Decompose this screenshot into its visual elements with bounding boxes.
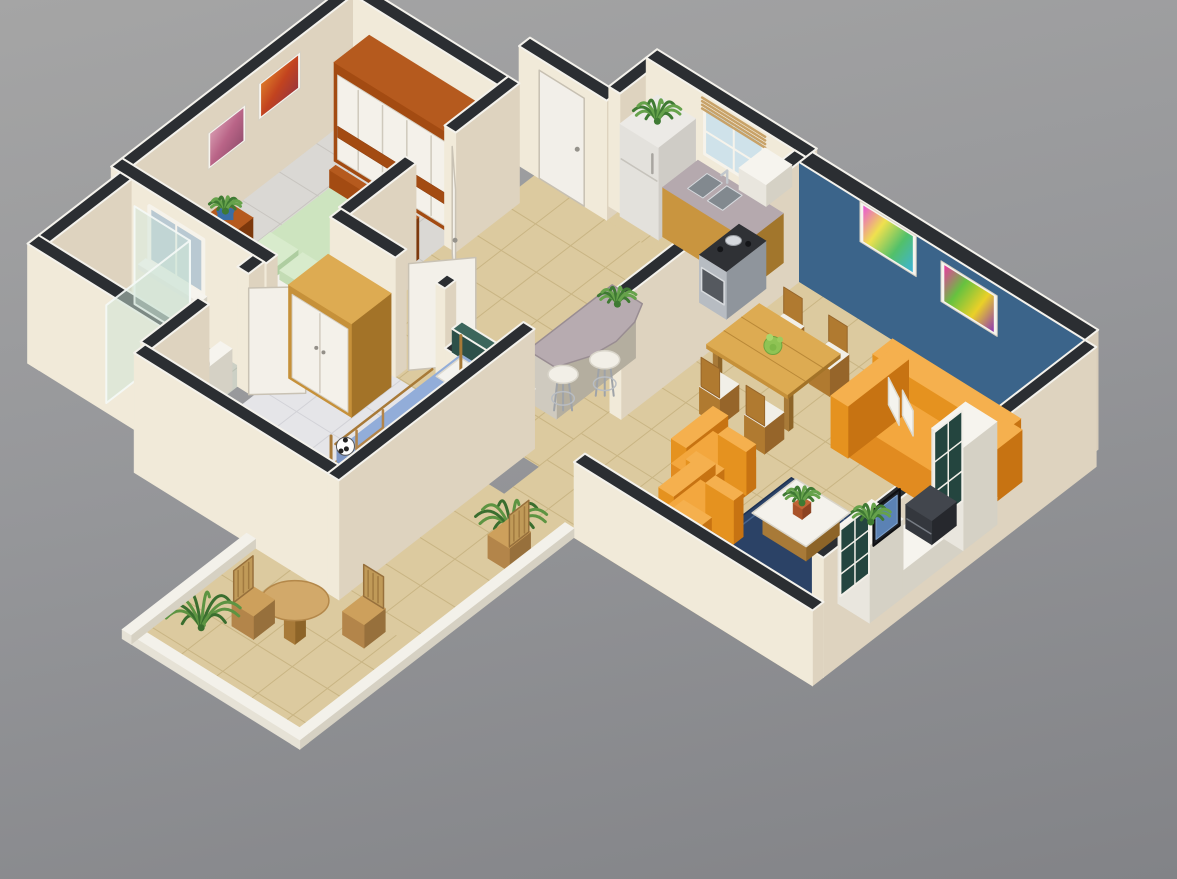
apple-2: [769, 344, 776, 351]
apple-1: [766, 334, 773, 341]
kettle: [725, 236, 741, 246]
bedroom-door-handle: [453, 238, 458, 243]
soccer-patch-1: [343, 438, 348, 443]
burner-2: [745, 241, 751, 247]
entry-door-handle: [575, 147, 580, 152]
kids-wardrobe-knob-2: [321, 350, 325, 354]
kids-wardrobe-knob-1: [314, 346, 318, 350]
soccer-patch-2: [344, 446, 349, 451]
floorplan-canvas: [0, 0, 1177, 879]
burner-1: [717, 246, 723, 252]
apple-3: [777, 337, 783, 343]
soccer-patch-3: [339, 448, 344, 453]
floorplan-3d-render: [0, 0, 1177, 879]
